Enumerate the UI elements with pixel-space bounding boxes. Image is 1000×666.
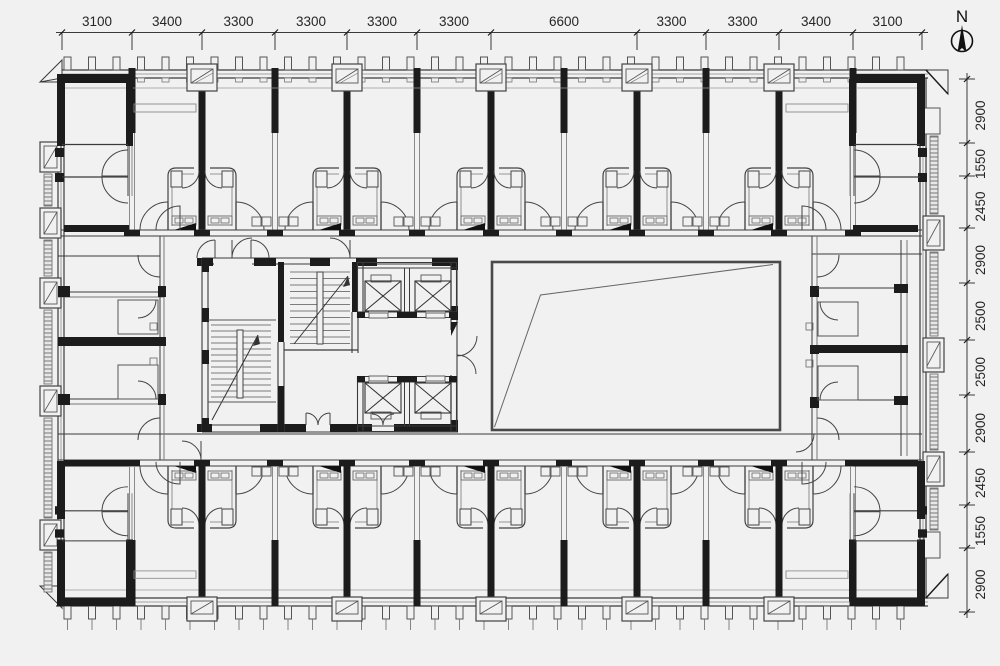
svg-text:3400: 3400 xyxy=(152,14,182,29)
svg-text:1550: 1550 xyxy=(973,149,988,179)
svg-text:3300: 3300 xyxy=(727,14,757,29)
svg-text:3300: 3300 xyxy=(439,14,469,29)
svg-text:3400: 3400 xyxy=(801,14,831,29)
svg-text:6600: 6600 xyxy=(549,14,579,29)
svg-text:3100: 3100 xyxy=(82,14,112,29)
svg-text:N: N xyxy=(956,7,968,26)
svg-text:3300: 3300 xyxy=(367,14,397,29)
svg-text:2900: 2900 xyxy=(973,245,988,275)
svg-text:2450: 2450 xyxy=(973,191,988,221)
svg-text:2450: 2450 xyxy=(973,468,988,498)
svg-text:3300: 3300 xyxy=(223,14,253,29)
svg-text:2500: 2500 xyxy=(973,357,988,387)
svg-text:2500: 2500 xyxy=(973,301,988,331)
svg-text:2900: 2900 xyxy=(973,413,988,443)
svg-text:1550: 1550 xyxy=(973,516,988,546)
svg-text:2900: 2900 xyxy=(973,100,988,130)
svg-text:2900: 2900 xyxy=(973,569,988,599)
svg-text:3300: 3300 xyxy=(296,14,326,29)
svg-text:3300: 3300 xyxy=(656,14,686,29)
svg-text:3100: 3100 xyxy=(872,14,902,29)
